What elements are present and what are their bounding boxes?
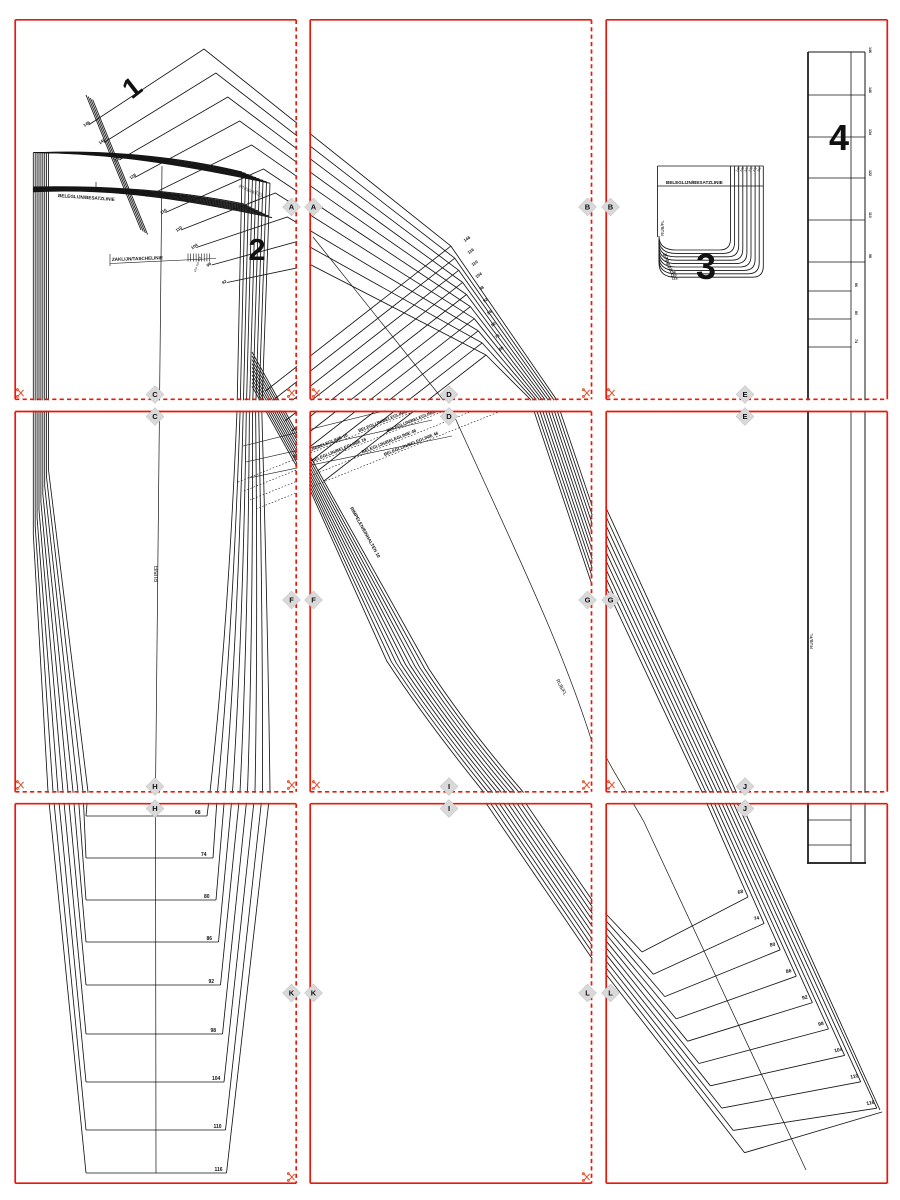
svg-text:80: 80 — [854, 311, 858, 315]
svg-text:86: 86 — [854, 283, 858, 287]
svg-text:J: J — [743, 782, 747, 791]
svg-text:G: G — [608, 596, 614, 605]
svg-text:74: 74 — [201, 852, 207, 858]
svg-text:116: 116 — [672, 277, 678, 281]
svg-text:146: 146 — [868, 87, 872, 93]
svg-text:122: 122 — [868, 170, 872, 176]
svg-text:68: 68 — [195, 810, 201, 816]
svg-text:110: 110 — [868, 212, 872, 218]
svg-text:F: F — [289, 596, 294, 605]
svg-text:86: 86 — [207, 936, 213, 942]
svg-text:146: 146 — [868, 47, 872, 53]
svg-text:H: H — [152, 782, 157, 791]
svg-text:RUB/FL: RUB/FL — [809, 633, 814, 649]
svg-text:F: F — [311, 596, 316, 605]
svg-text:K: K — [311, 989, 317, 998]
svg-text:80: 80 — [204, 894, 210, 900]
svg-text:L: L — [608, 989, 613, 998]
svg-text:98: 98 — [211, 1028, 217, 1034]
svg-text:98: 98 — [868, 254, 872, 258]
svg-text:3: 3 — [696, 246, 716, 287]
svg-text:A: A — [289, 203, 295, 212]
svg-text:H: H — [152, 804, 157, 813]
svg-text:110: 110 — [214, 1124, 222, 1130]
svg-text:134: 134 — [868, 129, 872, 135]
svg-text:RUB/FL: RUB/FL — [154, 564, 160, 582]
svg-text:A: A — [311, 203, 317, 212]
svg-text:D: D — [446, 412, 452, 421]
svg-text:K: K — [289, 989, 295, 998]
svg-text:74: 74 — [854, 339, 858, 343]
svg-text:92: 92 — [209, 979, 215, 985]
svg-text:L: L — [585, 989, 590, 998]
svg-text:D: D — [446, 390, 452, 399]
svg-text:G: G — [585, 596, 591, 605]
svg-text:2: 2 — [248, 232, 265, 267]
svg-text:E: E — [742, 412, 747, 421]
svg-text:I: I — [448, 804, 450, 813]
svg-text:E: E — [742, 390, 747, 399]
svg-text:C: C — [152, 412, 158, 421]
svg-text:4: 4 — [829, 117, 849, 158]
svg-text:BELEGLIJN/BESATZLINIE: BELEGLIJN/BESATZLINIE — [666, 180, 723, 185]
svg-text:I: I — [448, 782, 450, 791]
svg-text:104: 104 — [212, 1076, 221, 1082]
svg-text:B: B — [585, 203, 591, 212]
svg-text:116: 116 — [215, 1167, 223, 1173]
svg-text:RUB/FL: RUB/FL — [660, 220, 665, 236]
svg-text:J: J — [743, 804, 747, 813]
svg-text:B: B — [608, 203, 614, 212]
svg-text:C: C — [152, 390, 158, 399]
